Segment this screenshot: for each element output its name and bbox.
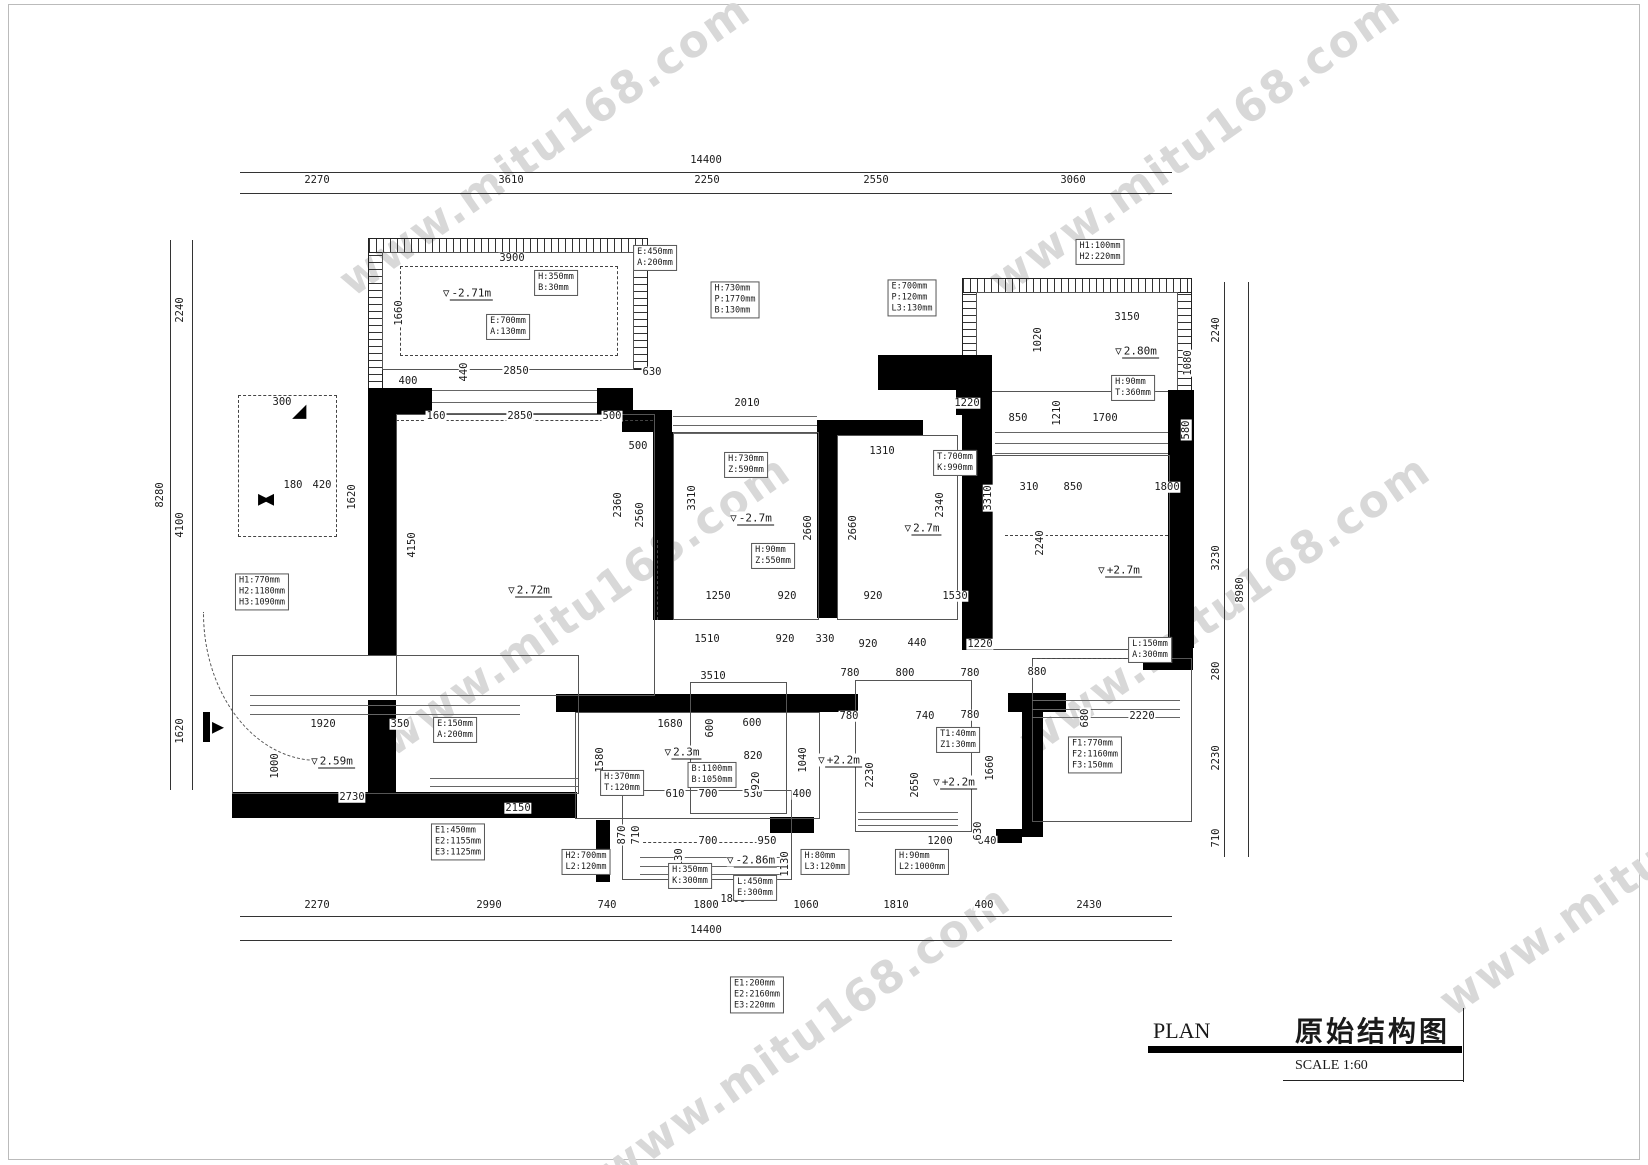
- elevation-triangle-icon: ▽: [727, 854, 734, 867]
- dimension-label: 160: [426, 411, 447, 422]
- dimension-label: 1220: [953, 398, 980, 409]
- dimension-label: 1060: [792, 900, 819, 911]
- dimension-label: 1700: [1091, 413, 1118, 424]
- dimension-label-vertical: 1660: [985, 754, 996, 781]
- dimension-label: 14400: [689, 925, 723, 936]
- dimension-label: 1220: [966, 639, 993, 650]
- dimension-label-vertical: 3230: [1211, 544, 1222, 571]
- elevation-marker: ▽2.3m: [664, 746, 701, 759]
- dimension-label-vertical: 1130: [780, 850, 791, 877]
- dimension-label: 740: [597, 900, 618, 911]
- dimension-label: 1310: [868, 446, 895, 457]
- dimension-label-vertical: 4100: [175, 511, 186, 538]
- dimension-label: 700: [698, 789, 719, 800]
- dimension-label: 780: [960, 668, 981, 679]
- dimension-label: 3060: [1059, 175, 1086, 186]
- annotation-note: L:450mmE:300mm: [733, 875, 777, 901]
- dimension-label-vertical: 3310: [983, 484, 994, 511]
- wall: [368, 388, 432, 414]
- elevation-marker: ▽+2.2m: [818, 754, 862, 767]
- dimension-label: 2010: [733, 398, 760, 409]
- elevation-marker: ▽2.7m: [904, 522, 941, 535]
- elevation-triangle-icon: ▽: [1115, 345, 1122, 358]
- dimension-label: 1680: [656, 719, 683, 730]
- drawing-title: 原始结构图: [1295, 1010, 1450, 1050]
- dimension-label-vertical: 2340: [935, 491, 946, 518]
- wall: [817, 420, 923, 435]
- annotation-note: H:730mmZ:590mm: [724, 452, 768, 478]
- dim-line: [1224, 282, 1225, 857]
- hatched-wall: [962, 278, 1192, 293]
- hatched-wall: [368, 238, 648, 253]
- dimension-label: 1800: [692, 900, 719, 911]
- annotation-note: E:150mmA:200mm: [433, 717, 477, 743]
- dimension-label-vertical: 2650: [910, 771, 921, 798]
- annotation-note: H:90mmT:360mm: [1111, 375, 1155, 401]
- hatched-wall: [1177, 292, 1192, 394]
- dimension-label-vertical: 680: [1080, 708, 1091, 729]
- dimension-label-vertical: 2560: [635, 501, 646, 528]
- floor-plan-sheet: www.mitu168.com www.mitu168.com www.mitu…: [0, 0, 1648, 1165]
- dimension-label-vertical: 1020: [1033, 326, 1044, 353]
- dimension-label-vertical: 1000: [270, 752, 281, 779]
- annotation-note: E1:200mmE2:2160mmE3:220mm: [730, 976, 784, 1013]
- dimension-label: 850: [1008, 413, 1029, 424]
- annotation-note: L:150mmA:300mm: [1128, 637, 1172, 663]
- annotation-note: E:700mmP:120mmL3:130mm: [888, 279, 937, 316]
- dimension-label: 610: [665, 789, 686, 800]
- annotation-note: H:350mmB:30mm: [534, 270, 578, 296]
- dim-line: [192, 240, 193, 790]
- elevation-marker: ▽+2.7m: [1098, 564, 1142, 577]
- dimension-label: 2550: [862, 175, 889, 186]
- dimension-label: 1250: [704, 591, 731, 602]
- dimension-label: 2250: [693, 175, 720, 186]
- dimension-label: 330: [815, 634, 836, 645]
- dimension-label: 500: [602, 411, 623, 422]
- corner-triangle-icon: ◢: [292, 398, 306, 422]
- dim-line: [240, 916, 1172, 917]
- annotation-note: H:90mmL2:1000mm: [895, 849, 949, 875]
- dimension-label: 1800: [1153, 482, 1180, 493]
- dimension-label: 350: [390, 719, 411, 730]
- wall: [996, 829, 1022, 843]
- dimension-label: 3610: [497, 175, 524, 186]
- dim-line: [240, 193, 1172, 194]
- annotation-note: T1:40mmZ1:30mm: [936, 727, 980, 753]
- dimension-label: 14400: [689, 155, 723, 166]
- dimension-label: 420: [312, 480, 333, 491]
- elevation-marker: ▽-2.71m: [443, 287, 493, 300]
- entry-arrow-icon: ▶: [212, 716, 224, 736]
- annotation-note: B:1100mmB:1050mm: [688, 762, 737, 788]
- dimension-label: 850: [1063, 482, 1084, 493]
- annotation-note: F1:770mmF2:1160mmF3:150mm: [1068, 736, 1122, 773]
- title-bar: [1148, 1046, 1462, 1053]
- elevation-triangle-icon: ▽: [508, 584, 515, 597]
- dimension-label: 310: [1019, 482, 1040, 493]
- annotation-note: H1:100mmH2:220mm: [1076, 239, 1125, 265]
- dimension-label-vertical: 280: [1211, 661, 1222, 682]
- wall: [878, 355, 958, 390]
- dimension-label: 3150: [1113, 312, 1140, 323]
- dimension-label: 780: [840, 668, 861, 679]
- dimension-label: 800: [895, 668, 916, 679]
- window: [995, 432, 1168, 454]
- elevation-marker: ▽-2.7m: [730, 512, 774, 525]
- annotation-note: H:80mmL3:120mm: [801, 849, 850, 875]
- dimension-label: 1510: [693, 634, 720, 645]
- dimension-label: 920: [775, 634, 796, 645]
- plan-label: PLAN: [1153, 1018, 1210, 1044]
- dim-line: [1248, 282, 1249, 857]
- room-living: [396, 414, 655, 696]
- dimension-label-vertical: 2240: [1035, 529, 1046, 556]
- dimension-label: 440: [907, 638, 928, 649]
- dimension-label: 1200: [926, 836, 953, 847]
- dim-line: [170, 240, 171, 790]
- dimension-label-vertical: 1660: [394, 299, 405, 326]
- dimension-label-vertical: 710: [631, 825, 642, 846]
- elevation-triangle-icon: ▽: [730, 512, 737, 525]
- elevation-triangle-icon: ▽: [443, 287, 450, 300]
- dimension-label: 1810: [882, 900, 909, 911]
- elevation-triangle-icon: ▽: [904, 522, 911, 535]
- dimension-label: 630: [642, 367, 663, 378]
- dimension-label: 600: [742, 718, 763, 729]
- room-bottom-small: [855, 680, 972, 832]
- elevation-marker: ▽+2.2m: [933, 776, 977, 789]
- annotation-note: E:450mmA:200mm: [633, 245, 677, 271]
- dimension-label-vertical: 2660: [803, 514, 814, 541]
- elevation-marker: ▽-2.86m: [727, 854, 777, 867]
- elevator-shaft: [238, 395, 337, 537]
- dimension-label-vertical: 630: [973, 821, 984, 842]
- dimension-label: 920: [858, 639, 879, 650]
- dimension-label: 400: [974, 900, 995, 911]
- dimension-label: 180: [283, 480, 304, 491]
- dimension-label-vertical: 1210: [1052, 399, 1063, 426]
- elevation-triangle-icon: ▽: [664, 746, 671, 759]
- dimension-label-vertical: 2660: [848, 514, 859, 541]
- annotation-note: H1:770mmH2:1180mmH3:1090mm: [235, 573, 289, 610]
- dimension-label: 950: [757, 836, 778, 847]
- dimension-label-vertical: 3310: [687, 484, 698, 511]
- window: [858, 812, 958, 826]
- dim-line: [240, 940, 1172, 941]
- dimension-label-vertical: 2240: [175, 296, 186, 323]
- dimension-label: 300: [272, 397, 293, 408]
- dimension-label-vertical: 1040: [798, 746, 809, 773]
- dimension-label-vertical: 600: [705, 718, 716, 739]
- dimension-label-vertical: 2230: [865, 761, 876, 788]
- dimension-label-vertical: 4150: [407, 531, 418, 558]
- dimension-label: 780: [839, 711, 860, 722]
- dimension-label-vertical: 8280: [155, 481, 166, 508]
- dimension-label-vertical: 920: [751, 771, 762, 792]
- title-underline: [1283, 1080, 1463, 1081]
- elevation-triangle-icon: ▽: [933, 776, 940, 789]
- dimension-label-vertical: 1080: [1183, 349, 1194, 376]
- dimension-label-vertical: 8980: [1235, 576, 1246, 603]
- elevation-marker: ▽2.80m: [1115, 345, 1159, 358]
- dimension-label: 1920: [309, 719, 336, 730]
- dimension-label: 2430: [1075, 900, 1102, 911]
- scale-label: SCALE 1:60: [1295, 1058, 1368, 1074]
- dimension-label: 400: [792, 789, 813, 800]
- dimension-label: 880: [1027, 667, 1048, 678]
- dimension-label: 780: [960, 710, 981, 721]
- wall: [817, 435, 837, 618]
- title-vline: [1463, 1008, 1464, 1082]
- dimension-label-vertical: 710: [1211, 828, 1222, 849]
- dimension-label-vertical: 2240: [1211, 316, 1222, 343]
- annotation-note: H:370mmT:120mm: [600, 770, 644, 796]
- wall: [653, 432, 673, 620]
- annotation-note: H:350mmK:300mm: [668, 863, 712, 889]
- dimension-label: 740: [915, 711, 936, 722]
- dimension-label: 3510: [699, 671, 726, 682]
- dimension-label: 2270: [303, 900, 330, 911]
- wall: [368, 414, 396, 656]
- dimension-label: 400: [398, 376, 419, 387]
- annotation-note: H:730mmP:1770mmB:130mm: [711, 281, 760, 318]
- elevation-marker: ▽2.59m: [311, 755, 355, 768]
- dimension-label: 920: [777, 591, 798, 602]
- dimension-label: 1530: [941, 591, 968, 602]
- elevation-triangle-icon: ▽: [1098, 564, 1105, 577]
- dimension-label: 2150: [504, 803, 531, 814]
- dimension-label: 2850: [506, 411, 533, 422]
- dimension-label: 2270: [303, 175, 330, 186]
- dimension-label: 920: [863, 591, 884, 602]
- window: [673, 416, 817, 434]
- dimension-label-vertical: 1620: [175, 717, 186, 744]
- dashed-line: [657, 540, 658, 620]
- dashed-ceiling-line: [400, 266, 618, 356]
- window: [430, 778, 578, 794]
- dimension-label: 820: [743, 751, 764, 762]
- dimension-label-vertical: 1620: [347, 483, 358, 510]
- dimension-label-vertical: 580: [1181, 420, 1192, 441]
- hatched-wall: [368, 252, 383, 390]
- dimension-label: 2990: [475, 900, 502, 911]
- annotation-note: T:700mmK:990mm: [933, 450, 977, 476]
- dimension-label: 2850: [502, 366, 529, 377]
- dimension-label-vertical: 440: [459, 362, 470, 383]
- annotation-note: H2:700mmL2:120mm: [562, 849, 611, 875]
- dimension-label: 2730: [338, 792, 365, 803]
- dimension-label-vertical: 2230: [1211, 744, 1222, 771]
- dimension-label: 500: [628, 441, 649, 452]
- elevation-marker: ▽2.72m: [508, 584, 552, 597]
- entry-marker: [203, 712, 210, 742]
- dimension-label: 700: [698, 836, 719, 847]
- annotation-note: H:90mmZ:550mm: [751, 543, 795, 569]
- elevation-triangle-icon: ▽: [818, 754, 825, 767]
- window: [1032, 700, 1180, 718]
- dimension-label: 2220: [1128, 711, 1155, 722]
- elevation-triangle-icon: ▽: [311, 755, 318, 768]
- dimension-label: 3900: [498, 253, 525, 264]
- dimension-label-vertical: 2360: [613, 491, 624, 518]
- bowtie-icon: ▶◀: [258, 488, 266, 508]
- annotation-note: E:700mmA:130mm: [486, 314, 530, 340]
- dimension-label-vertical: 870: [617, 825, 628, 846]
- annotation-note: E1:450mmE2:1155mmE3:1125mm: [431, 823, 485, 860]
